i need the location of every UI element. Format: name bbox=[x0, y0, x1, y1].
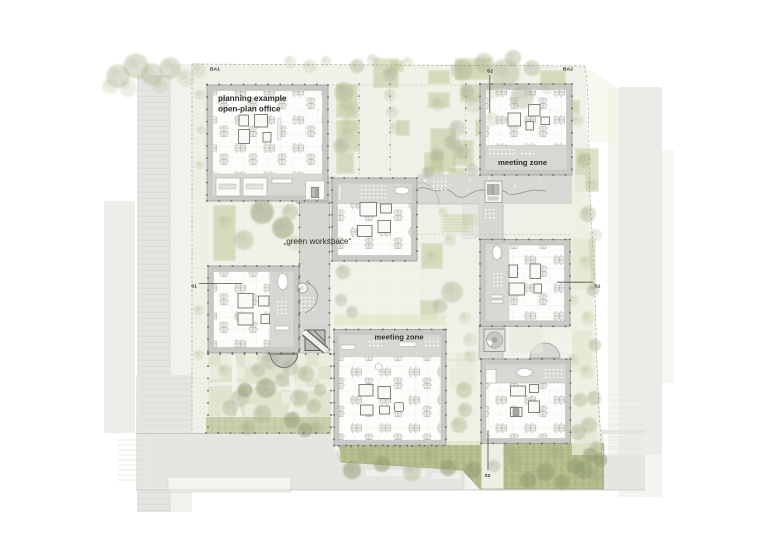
svg-text:BA1: BA1 bbox=[210, 67, 220, 73]
svg-text:S1: S1 bbox=[595, 284, 601, 290]
svg-text:meeting zone: meeting zone bbox=[375, 333, 425, 342]
svg-text:BA2: BA2 bbox=[563, 67, 573, 73]
svg-text:meeting zone: meeting zone bbox=[498, 158, 548, 167]
svg-text:open-plan office: open-plan office bbox=[218, 105, 281, 114]
svg-text:S2: S2 bbox=[487, 69, 493, 75]
svg-text:planning example: planning example bbox=[218, 94, 287, 103]
svg-text:„green workspace“: „green workspace“ bbox=[284, 237, 352, 246]
svg-text:S2: S2 bbox=[485, 473, 491, 479]
svg-text:S1: S1 bbox=[191, 284, 197, 290]
